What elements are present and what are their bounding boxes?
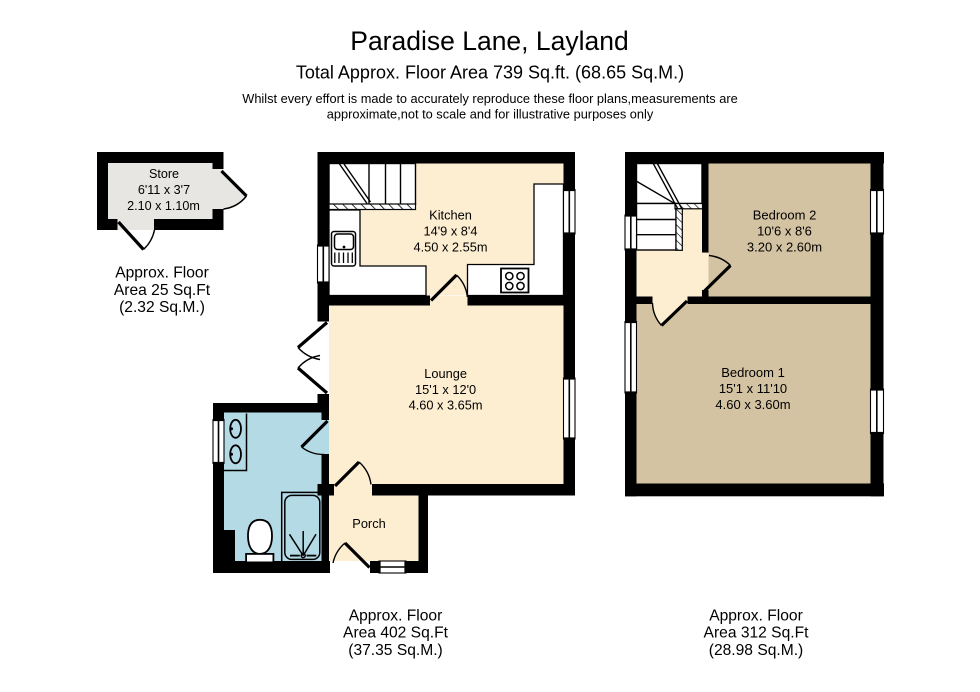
svg-text:Bedroom 1: Bedroom 1 bbox=[721, 365, 785, 380]
svg-text:approximate,not to scale and f: approximate,not to scale and for illustr… bbox=[327, 107, 654, 122]
svg-text:2.10 x 1.10m: 2.10 x 1.10m bbox=[127, 199, 200, 213]
svg-text:Area 312 Sq.Ft: Area 312 Sq.Ft bbox=[704, 625, 810, 642]
svg-text:Total Approx. Floor Area 739 S: Total Approx. Floor Area 739 Sq.ft. (68.… bbox=[296, 63, 684, 83]
svg-text:(28.98 Sq.M.): (28.98 Sq.M.) bbox=[709, 642, 803, 659]
svg-text:4.60 x 3.60m: 4.60 x 3.60m bbox=[715, 397, 790, 412]
svg-text:(37.35 Sq.M.): (37.35 Sq.M.) bbox=[348, 642, 442, 659]
svg-text:Lounge: Lounge bbox=[424, 366, 467, 381]
svg-text:4.50 x 2.55m: 4.50 x 2.55m bbox=[414, 239, 488, 254]
svg-text:Area 402 Sq.Ft: Area 402 Sq.Ft bbox=[343, 625, 449, 642]
svg-text:Porch: Porch bbox=[352, 516, 385, 531]
svg-text:Paradise Lane, Layland: Paradise Lane, Layland bbox=[350, 26, 628, 56]
svg-text:3.20 x 2.60m: 3.20 x 2.60m bbox=[747, 239, 822, 254]
svg-text:Approx. Floor: Approx. Floor bbox=[115, 265, 209, 282]
svg-text:(2.32 Sq.M.): (2.32 Sq.M.) bbox=[119, 299, 205, 316]
svg-text:Kitchen: Kitchen bbox=[429, 208, 472, 223]
svg-text:Whilst every effort is made to: Whilst every effort is made to accuratel… bbox=[242, 91, 738, 106]
svg-text:Bedroom 2: Bedroom 2 bbox=[753, 208, 817, 223]
svg-text:15'1 x 11'10: 15'1 x 11'10 bbox=[719, 381, 787, 396]
svg-text:10'6 x 8'6: 10'6 x 8'6 bbox=[757, 224, 812, 239]
svg-text:6'11 x 3'7: 6'11 x 3'7 bbox=[138, 183, 190, 197]
svg-text:Approx. Floor: Approx. Floor bbox=[349, 607, 443, 624]
svg-text:15'1 x 12'0: 15'1 x 12'0 bbox=[415, 382, 476, 397]
svg-text:Store: Store bbox=[149, 167, 179, 181]
svg-text:Area 25 Sq.Ft: Area 25 Sq.Ft bbox=[114, 282, 211, 299]
svg-text:Approx. Floor: Approx. Floor bbox=[709, 607, 803, 624]
svg-text:14'9 x 8'4: 14'9 x 8'4 bbox=[424, 224, 478, 239]
svg-text:4.60 x 3.65m: 4.60 x 3.65m bbox=[409, 398, 483, 413]
